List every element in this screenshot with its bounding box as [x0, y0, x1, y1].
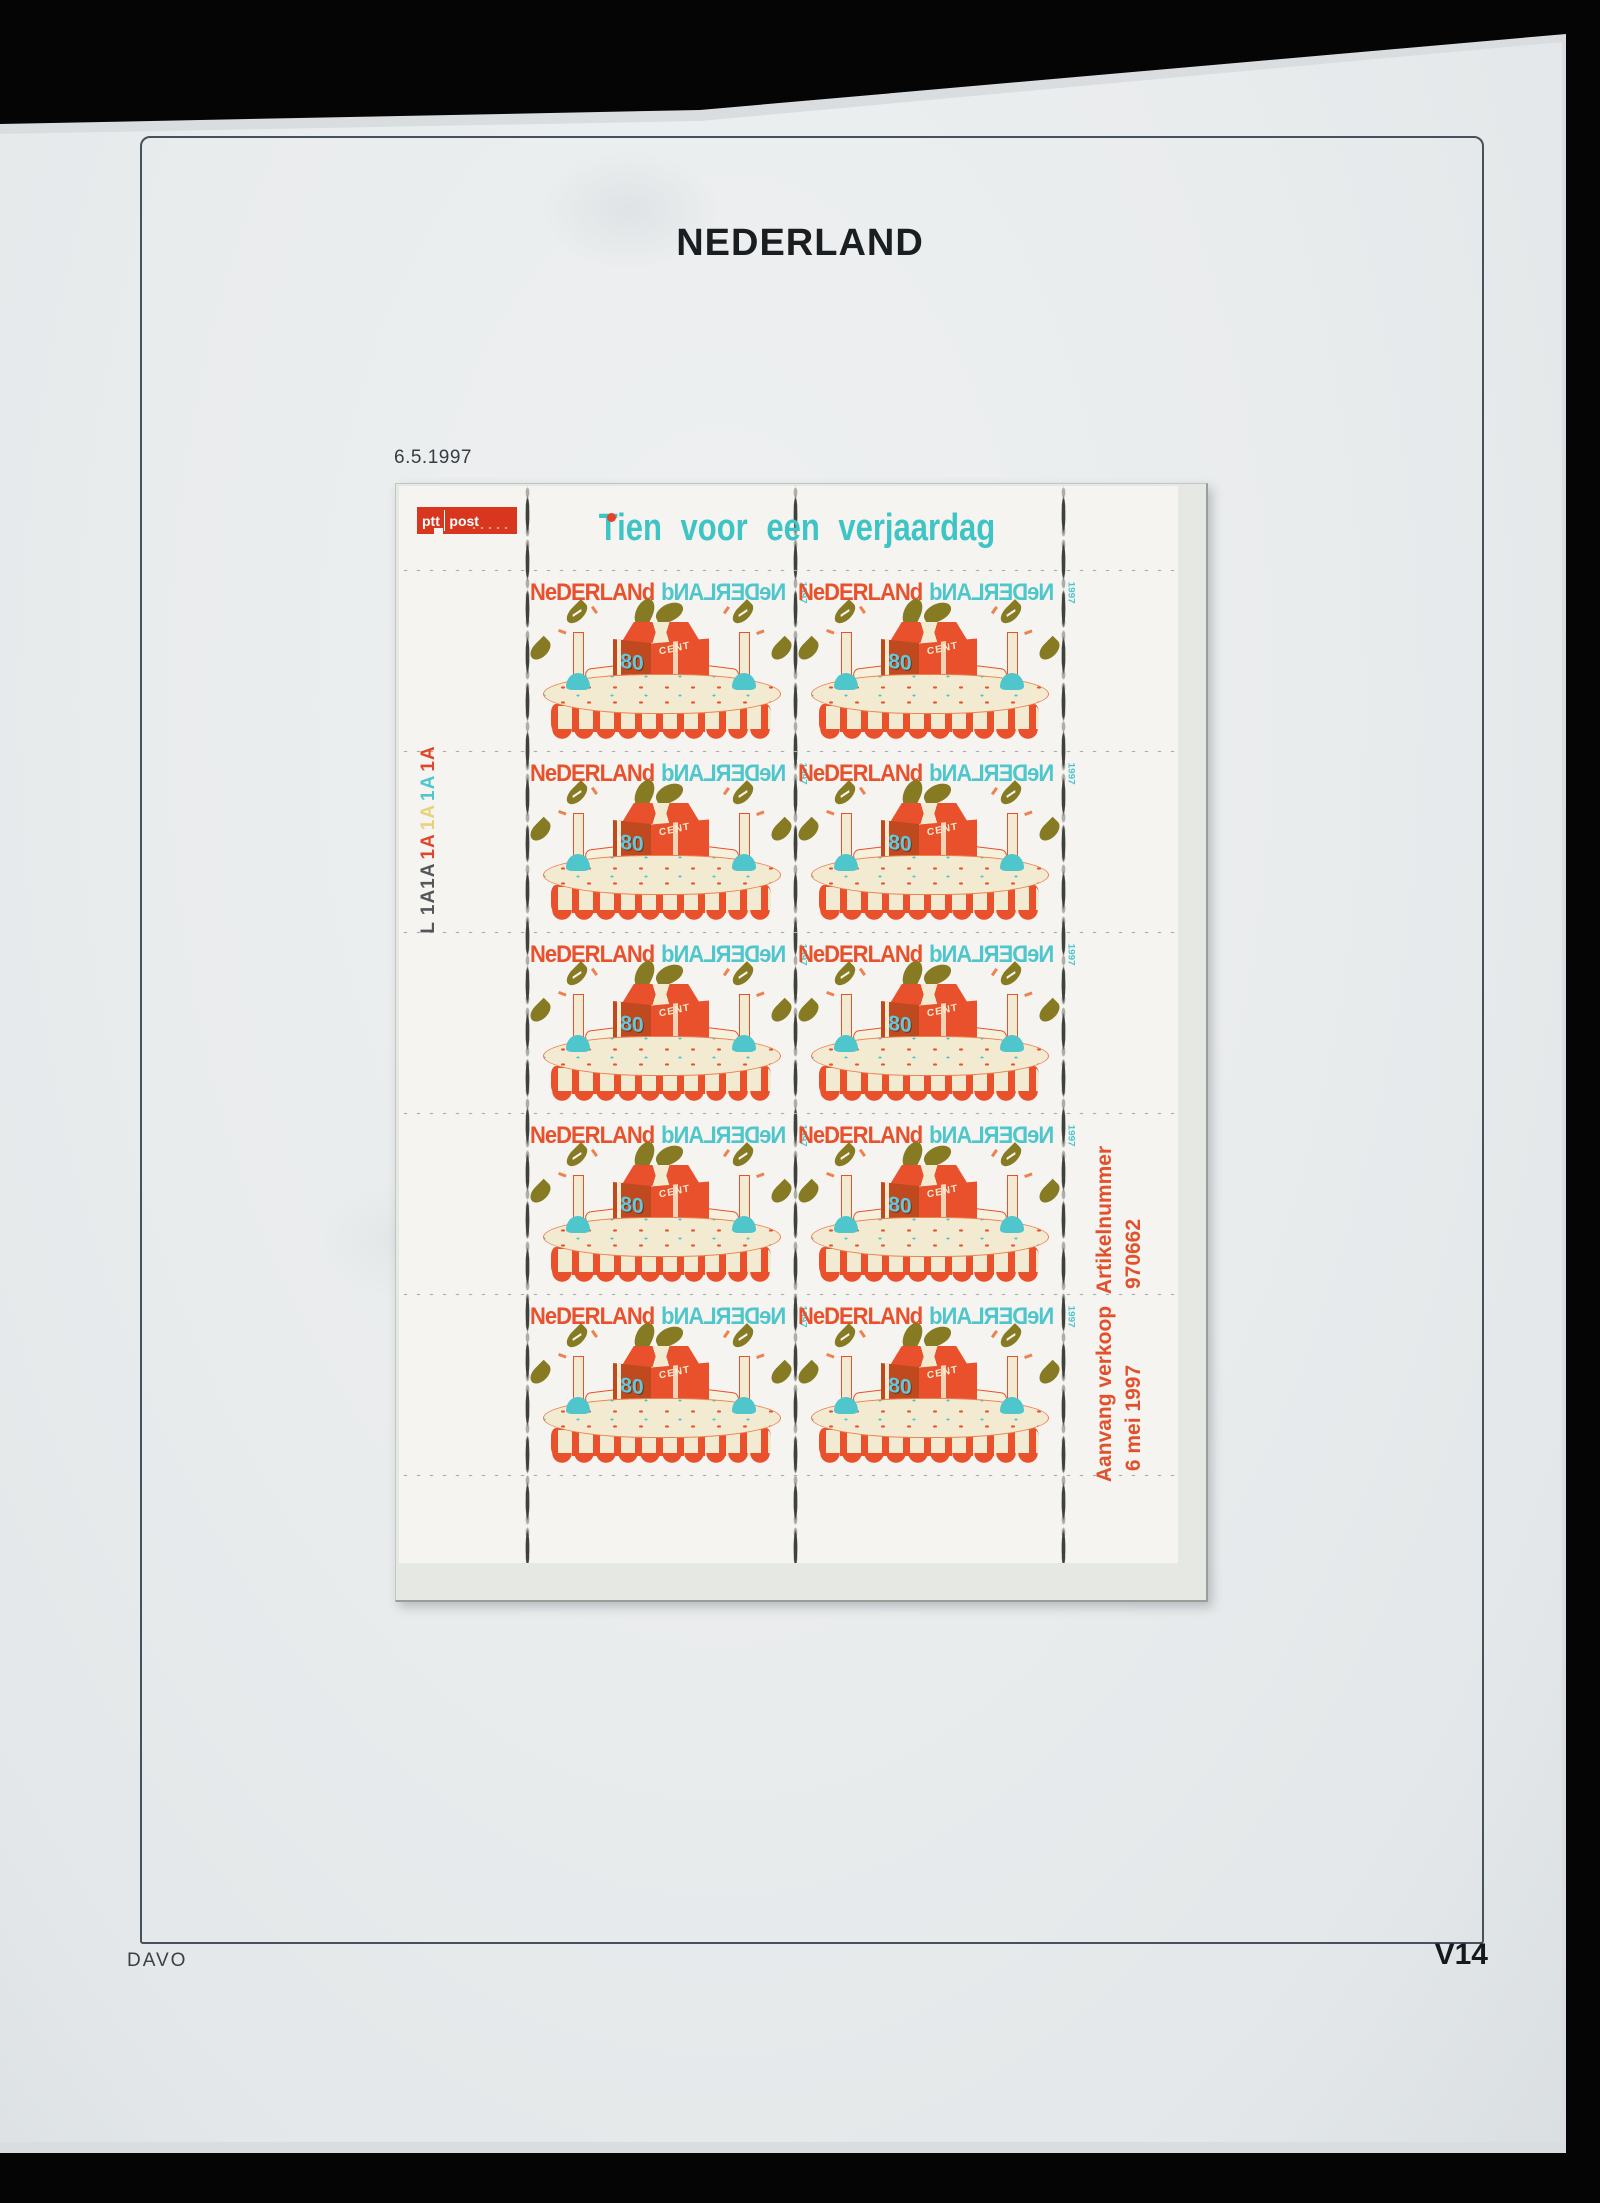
perforation-column [525, 486, 530, 1563]
plate-marking-part: 1A [418, 804, 439, 830]
candle-icon [841, 1175, 852, 1225]
stamp-country-text-mirrored: NeDERLANd [662, 942, 786, 966]
red-i-dot [607, 513, 616, 522]
stamp: NeDERLANd NeDERLANd 1997 80 [795, 932, 1063, 1113]
candle-icon [1007, 813, 1018, 863]
sparkle-dash [859, 1330, 866, 1338]
stamp-currency: CENT [658, 1183, 690, 1200]
stamp-country-band: NeDERLANd NeDERLANd 1997 [798, 1123, 1081, 1147]
candle-icon [739, 994, 750, 1044]
olive-drop-icon [795, 636, 823, 664]
perforation-column [1061, 486, 1066, 1563]
stamp-year-text: 1997 [1066, 1125, 1075, 1147]
sparkle-dash [756, 991, 764, 996]
stamp: NeDERLANd NeDERLANd 1997 80 [527, 570, 795, 751]
olive-drop-icon [795, 1360, 823, 1388]
stamp-sheet: NeDERLANd NeDERLANd 1997 80 [399, 486, 1178, 1563]
stamp-country-band: NeDERLANd NeDERLANd 1997 [530, 942, 813, 966]
olive-drop-icon [795, 1179, 823, 1207]
stamp-country-text-mirrored: NeDERLANd [930, 580, 1054, 604]
stamp: NeDERLANd NeDERLANd 1997 80 [795, 1113, 1063, 1294]
tulip-icon [732, 1216, 756, 1233]
stamp-country-text-mirrored: NeDERLANd [930, 761, 1054, 785]
stamp-currency: CENT [926, 1364, 958, 1381]
sparkle-dash [591, 1330, 598, 1338]
stamp-country-text: NeDERLANd [530, 759, 654, 787]
olive-drop-icon [527, 998, 555, 1026]
olive-drop-icon [527, 636, 555, 664]
candle-icon [739, 1356, 750, 1406]
stamp: NeDERLANd NeDERLANd 1997 80 [527, 932, 795, 1113]
stamp-country-band: NeDERLANd NeDERLANd 1997 [530, 1304, 813, 1328]
stamp-value: 80 [888, 1011, 911, 1037]
sparkle-dash [991, 787, 998, 795]
stamp-country-band: NeDERLANd NeDERLANd 1997 [530, 761, 813, 785]
stamp-value: 80 [888, 1373, 911, 1399]
olive-drop-icon [768, 817, 796, 845]
sparkle-dash [756, 629, 764, 634]
sparkle-dash [826, 629, 834, 634]
sparkle-dash [826, 1172, 834, 1177]
candle-icon [573, 1356, 584, 1406]
olive-drop-icon [768, 636, 796, 664]
stamp-year-text: 1997 [1066, 763, 1075, 785]
stamp-currency: CENT [658, 1364, 690, 1381]
tulip-icon [732, 1397, 756, 1414]
tulip-icon [732, 673, 756, 690]
stamp-country-text-mirrored: NeDERLANd [662, 1304, 786, 1328]
stamp: NeDERLANd NeDERLANd 1997 80 [527, 751, 795, 932]
stamp: NeDERLANd NeDERLANd 1997 80 [795, 751, 1063, 932]
olive-drop-icon [768, 1179, 796, 1207]
cake-skirt-icon [551, 1272, 771, 1285]
olive-drop-icon [1036, 636, 1064, 664]
logo-notch [434, 528, 443, 536]
sparkle-dash [723, 787, 730, 795]
cake-skirt-icon [819, 1453, 1039, 1466]
tulip-icon [732, 854, 756, 871]
cake-skirt-icon [551, 1453, 771, 1466]
sparkle-dash [859, 1149, 866, 1157]
logo-ptt-text: ptt [417, 513, 444, 529]
stamp-value: 80 [620, 649, 643, 675]
stamp-value: 80 [620, 1373, 643, 1399]
sparkle-dash [1024, 991, 1032, 996]
sparkle-dash [756, 810, 764, 815]
stamp-currency: CENT [658, 821, 690, 838]
candle-icon [739, 813, 750, 863]
sparkle-dash [756, 1353, 764, 1358]
logo-dots [470, 526, 510, 530]
stamp-country-band: NeDERLANd NeDERLANd 1997 [798, 580, 1081, 604]
stamp-value: 80 [620, 1192, 643, 1218]
cake-skirt-icon [819, 1091, 1039, 1104]
stamp-country-band: NeDERLANd NeDERLANd 1997 [530, 580, 813, 604]
sparkle-dash [591, 787, 598, 795]
sparkle-dash [1024, 1353, 1032, 1358]
sparkle-dash [1024, 1172, 1032, 1177]
stamp-year-text: 1997 [1066, 944, 1075, 966]
stamp: NeDERLANd NeDERLANd 1997 80 [527, 1113, 795, 1294]
stamp-country-band: NeDERLANd NeDERLANd 1997 [798, 1304, 1081, 1328]
sparkle-dash [1024, 810, 1032, 815]
olive-drop-icon [768, 998, 796, 1026]
tulip-icon [1000, 673, 1024, 690]
sparkle-dash [558, 629, 566, 634]
stamp-country-band: NeDERLANd NeDERLANd 1997 [530, 1123, 813, 1147]
plate-marking-part: 1A [418, 833, 439, 859]
candle-icon [573, 1175, 584, 1225]
plate-number-marking: L 1A1A1A1A1A1A [418, 742, 440, 933]
stamp-year-text: 1997 [1066, 582, 1075, 604]
stamp-country-text-mirrored: NeDERLANd [930, 942, 1054, 966]
candle-icon [573, 813, 584, 863]
sparkle-dash [826, 810, 834, 815]
stamp-country-text: NeDERLANd [798, 759, 922, 787]
candle-icon [841, 1356, 852, 1406]
sparkle-dash [591, 968, 598, 976]
plate-marking-part: L 1A1A [418, 863, 439, 934]
sparkle-dash [859, 968, 866, 976]
sparkle-dash [756, 1172, 764, 1177]
sparkle-dash [591, 1149, 598, 1157]
cake-skirt-icon [819, 729, 1039, 742]
candle-icon [841, 813, 852, 863]
olive-drop-icon [1036, 998, 1064, 1026]
stamp-value: 80 [620, 830, 643, 856]
olive-drop-icon [1036, 1360, 1064, 1388]
tulip-icon [732, 1035, 756, 1052]
sparkle-dash [991, 1330, 998, 1338]
olive-drop-icon [1036, 1179, 1064, 1207]
sparkle-dash [558, 991, 566, 996]
perforation-row [399, 1292, 1178, 1297]
ptt-post-logo: ptt post [417, 507, 517, 534]
cake-skirt-icon [551, 729, 771, 742]
stamp-currency: CENT [926, 640, 958, 657]
stamp-country-text: NeDERLANd [798, 1302, 922, 1330]
sparkle-dash [991, 968, 998, 976]
stamp-value: 80 [888, 830, 911, 856]
perforation-row [399, 1473, 1178, 1478]
sparkle-dash [826, 1353, 834, 1358]
stamp-country-text-mirrored: NeDERLANd [662, 1123, 786, 1147]
stamp-country-text: NeDERLANd [530, 1121, 654, 1149]
olive-drop-icon [795, 817, 823, 845]
candle-icon [573, 632, 584, 682]
stamp-country-text: NeDERLANd [530, 578, 654, 606]
sale-start-label: Aanvang verkoop [1093, 1306, 1117, 1482]
stamp-year-text: 1997 [1066, 1306, 1075, 1328]
olive-drop-icon [795, 998, 823, 1026]
stamp-country-text: NeDERLANd [798, 1121, 922, 1149]
candle-icon [841, 632, 852, 682]
stamp-country-text: NeDERLANd [798, 578, 922, 606]
issue-date-label: 6.5.1997 [394, 447, 472, 469]
candle-icon [841, 994, 852, 1044]
stamp-country-band: NeDERLANd NeDERLANd 1997 [798, 761, 1081, 785]
album-page: NEDERLAND 6.5.1997 NeDERLANd NeDERLANd 1… [0, 0, 1600, 2203]
stamp-country-text-mirrored: NeDERLANd [930, 1123, 1054, 1147]
tulip-icon [1000, 1216, 1024, 1233]
stamp-country-text-mirrored: NeDERLANd [930, 1304, 1054, 1328]
sheet-header-title: Tien voor een verjaardag [527, 506, 1067, 550]
stamp-country-text-mirrored: NeDERLANd [662, 580, 786, 604]
stamp-country-text: NeDERLANd [530, 1302, 654, 1330]
sparkle-dash [859, 606, 866, 614]
olive-drop-icon [527, 817, 555, 845]
sparkle-dash [558, 1172, 566, 1177]
article-number-label: Artikelnummer [1093, 1146, 1117, 1294]
candle-icon [739, 1175, 750, 1225]
page-title: NEDERLAND [0, 222, 1600, 265]
sparkle-dash [991, 1149, 998, 1157]
perforation-row [399, 1111, 1178, 1116]
perforation-row [399, 930, 1178, 935]
sparkle-dash [859, 787, 866, 795]
perforation-column [793, 486, 798, 1563]
sparkle-dash [558, 810, 566, 815]
stamp: NeDERLANd NeDERLANd 1997 80 [527, 1294, 795, 1475]
sale-start-date: 6 mei 1997 [1122, 1365, 1146, 1471]
cake-skirt-icon [819, 1272, 1039, 1285]
photo-stage: NEDERLAND 6.5.1997 NeDERLANd NeDERLANd 1… [0, 0, 1600, 2203]
tulip-icon [1000, 1397, 1024, 1414]
candle-icon [1007, 1175, 1018, 1225]
stamp-currency: CENT [926, 821, 958, 838]
stamp: NeDERLANd NeDERLANd 1997 80 [795, 1294, 1063, 1475]
stamp-country-text-mirrored: NeDERLANd [662, 761, 786, 785]
sparkle-dash [723, 1330, 730, 1338]
stamp-country-band: NeDERLANd NeDERLANd 1997 [798, 942, 1081, 966]
article-number-value: 970662 [1122, 1219, 1146, 1289]
sparkle-dash [826, 991, 834, 996]
candle-icon [739, 632, 750, 682]
stamp-currency: CENT [658, 1002, 690, 1019]
stamp-value: 80 [888, 649, 911, 675]
stamp-mount: NeDERLANd NeDERLANd 1997 80 [395, 483, 1208, 1602]
publisher-label: DAVO [127, 1950, 187, 1972]
olive-drop-icon [1036, 817, 1064, 845]
candle-icon [573, 994, 584, 1044]
sparkle-dash [723, 606, 730, 614]
sparkle-dash [991, 606, 998, 614]
sparkle-dash [1024, 629, 1032, 634]
cake-skirt-icon [551, 910, 771, 923]
plate-marking-part: 1A [418, 775, 439, 801]
cake-skirt-icon [551, 1091, 771, 1104]
cake-skirt-icon [819, 910, 1039, 923]
sparkle-dash [558, 1353, 566, 1358]
olive-drop-icon [768, 1360, 796, 1388]
stamp: NeDERLANd NeDERLANd 1997 80 [795, 570, 1063, 751]
sparkle-dash [723, 968, 730, 976]
sparkle-dash [723, 1149, 730, 1157]
olive-drop-icon [527, 1360, 555, 1388]
plate-marking-part: 1A [418, 745, 439, 771]
stamp-currency: CENT [926, 1002, 958, 1019]
page-code-label: V14 [1330, 1938, 1488, 1972]
candle-icon [1007, 994, 1018, 1044]
candle-icon [1007, 1356, 1018, 1406]
candle-icon [1007, 632, 1018, 682]
perforation-row [399, 568, 1178, 573]
stamp-country-text: NeDERLANd [798, 940, 922, 968]
tulip-icon [1000, 1035, 1024, 1052]
stamp-value: 80 [620, 1011, 643, 1037]
tulip-icon [1000, 854, 1024, 871]
stamp-value: 80 [888, 1192, 911, 1218]
stamp-currency: CENT [926, 1183, 958, 1200]
sparkle-dash [591, 606, 598, 614]
olive-drop-icon [527, 1179, 555, 1207]
stamp-country-text: NeDERLANd [530, 940, 654, 968]
perforation-row [399, 749, 1178, 754]
stamp-currency: CENT [658, 640, 690, 657]
